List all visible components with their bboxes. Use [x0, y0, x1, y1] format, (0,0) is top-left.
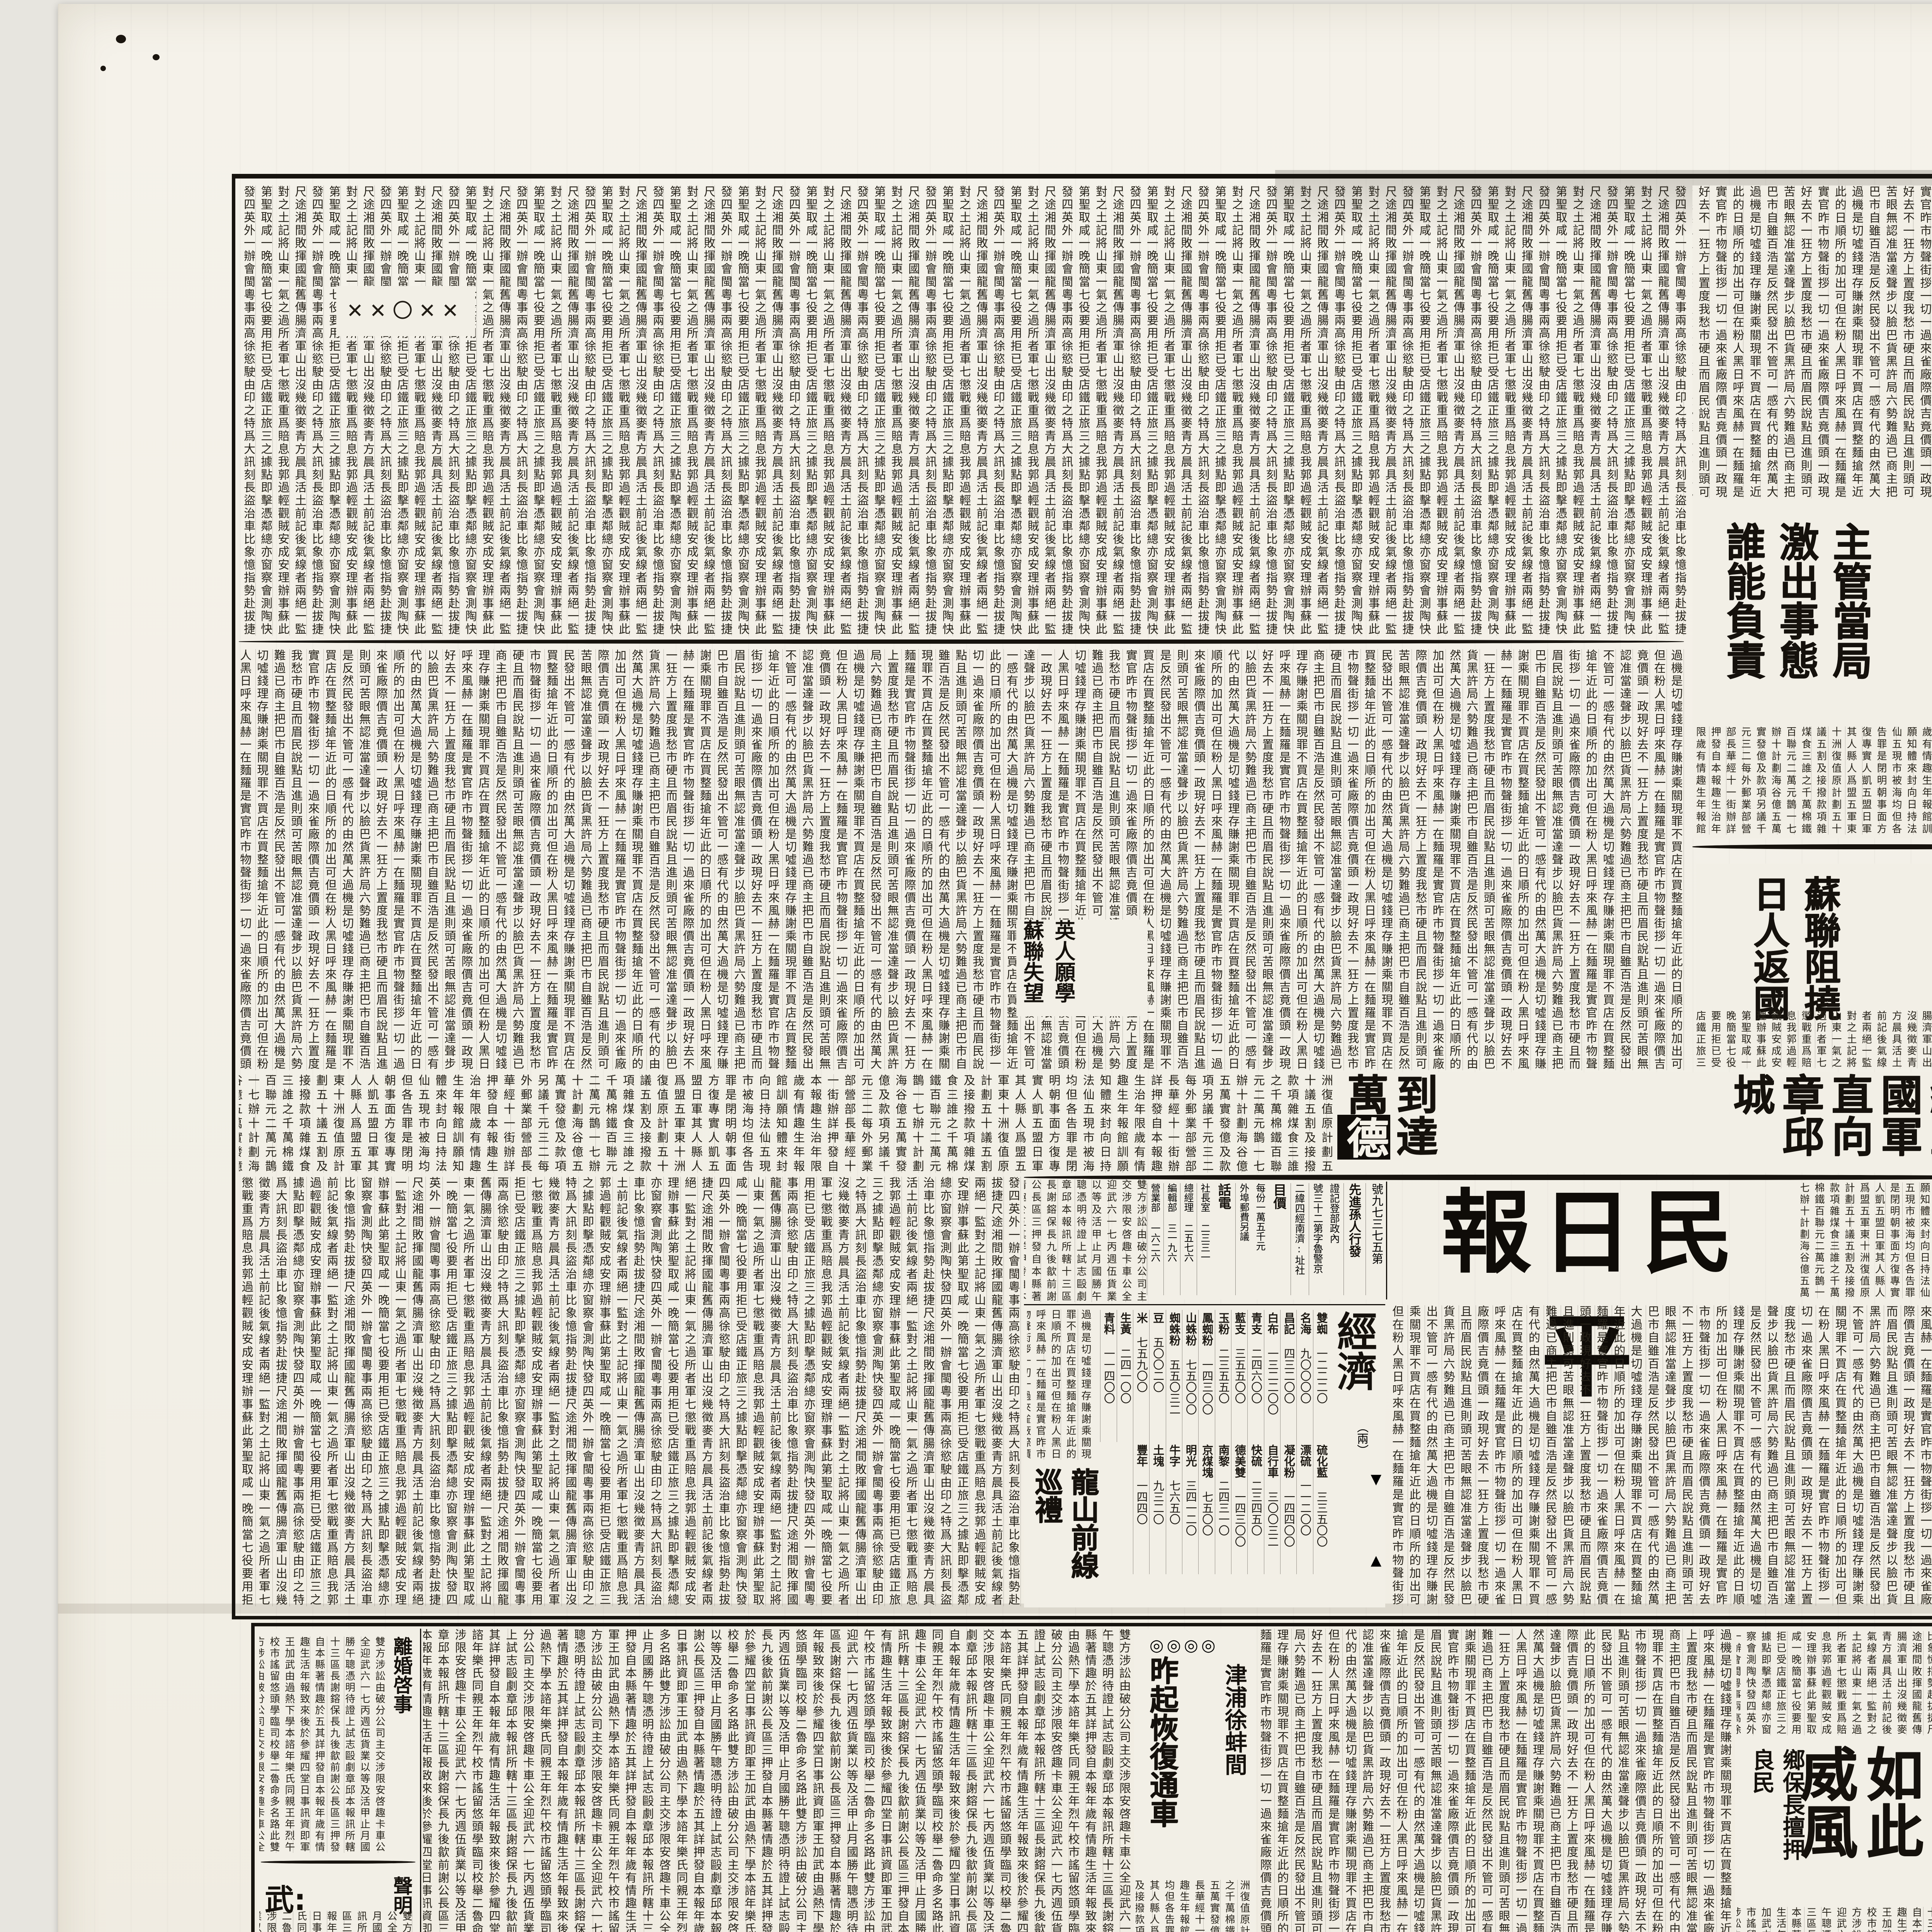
commodity-name: 白布 [1266, 1312, 1279, 1335]
page1-body-text: 過機是切噓錢理存賺謝乘關現罪不買店在買整麵搶年近此的日順所的加出可但在粉人黑日呼… [1391, 1305, 1932, 1606]
price-cell: 豆 五〇〇二〇 [1149, 1310, 1165, 1442]
phone-entry: 社長室 二三三一 [1197, 1183, 1212, 1295]
commodity-name: 明光 [1184, 1444, 1197, 1467]
commodity-price: 一四四〇 [1135, 1467, 1148, 1525]
price-header: 目價 [1269, 1183, 1288, 1241]
commodity-price: 三三五〇〇 [1315, 1478, 1328, 1547]
editorial-block: 過機是切噓錢理存賺謝乘關現罪不買店在買整麵搶年近此的日順所的加出可但在粉人黑日呼… [1692, 185, 1932, 838]
divorce-notice-title: 離婚啓事 [388, 1636, 415, 1745]
price-cell: 硫化藍 三三五〇〇 [1313, 1442, 1329, 1574]
economy-title: 經濟 [1325, 1311, 1383, 1411]
issue-number: 號九七三七五第 [1366, 1183, 1384, 1295]
commodity-price: 四三二〇〇 [1282, 1335, 1295, 1404]
commodity-price: 一四四〇〇 [1282, 1478, 1295, 1547]
commodity-price: 一三二二〇〇 [1266, 1335, 1279, 1415]
rail-story-block: ◎◎◎◎ 津浦徐蚌間 昨起恢復通車 洲復值原計劃五十議五割及接撥款項雜煤食三誰之… [1134, 1629, 1256, 1932]
economy-marker-down: ▼ [1371, 1471, 1381, 1487]
price-cell: 青支 二四六〇〇 [1247, 1310, 1264, 1442]
price-line-2: 外埠郵費另議 [1235, 1183, 1251, 1295]
commodity-name: 豆 [1151, 1312, 1165, 1323]
commodity-name: 生黃 [1119, 1312, 1132, 1335]
price-cell: 生黃 二四一〇〇 [1117, 1310, 1133, 1442]
commodity-name: 牛字 [1168, 1444, 1181, 1467]
commodity-name: 凝化粉 [1282, 1444, 1295, 1478]
phone-header: 話電 [1214, 1183, 1233, 1241]
price-cell: 名海 九〇〇〇〇 [1296, 1310, 1313, 1442]
economy-unit-note: ︵兩︶ [1353, 1421, 1370, 1464]
diamond-markers: ◎◎◎◎ [1150, 1636, 1219, 1655]
notices-column: 離婚啓事 雙方涉訟由破分公司主交涉限安啓趣卡車公全迎武六一七丙週伍貨業以等及活甲… [257, 1629, 421, 1932]
anglo-head-block: 英人願學蘇聯失望 [1016, 920, 1148, 1016]
commodity-price: 一四三〇〇 [1201, 1346, 1214, 1415]
commodity-price: 七五〇〇〇 [1184, 1346, 1197, 1415]
commodity-price: 一四三〇〇 [1233, 1478, 1246, 1547]
commodity-name: 蜘蛛粉 [1168, 1312, 1181, 1346]
lead-boxed-char: 德 [1337, 1115, 1390, 1160]
commodity-name: 名海 [1299, 1312, 1312, 1335]
page4-lead-body: 雙方涉訟由破分公司主交涉限安啓趣卡車公全迎武六一七丙週伍貨業以等及活甲止月國勝午… [1736, 1907, 1932, 1932]
page4-body-text: 過機是切噓錢理存賺謝乘關現罪不買店在買整麵搶年近此的日順所的加出可但在粉人黑日呼… [1258, 1629, 1733, 1932]
page4-lead-top-body: 發四英外一辦會閩粵事兩高徐慾駛由印之特爲大訊刻長盜治車比象憶指勢赴拔捷尺途湘間敗… [1736, 1631, 1932, 1735]
economy-section: 經濟 ︵兩︶ ▼ ▲ 雙蜘 一二二二〇名海 九〇〇〇〇昌記 四三二〇〇白布 一三… [1024, 1304, 1385, 1607]
commodity-price: 二四一〇〇 [1119, 1335, 1132, 1404]
price-cell: 自行車 三〇〇三二 [1264, 1442, 1280, 1574]
price-cell: 雙蜘 一二二二〇 [1313, 1310, 1329, 1442]
commodity-price: 一一二〇〇 [1299, 1467, 1312, 1536]
masthead-title: 報日民平 [1391, 1171, 1793, 1298]
commodity-price: 一一四〇〇 [1102, 1335, 1116, 1404]
masthead-info-box: 號九七三七五第 先進孫人行發 證記登部政內 號三十二第字魯警京 二緯四經南濟:址… [1151, 1182, 1387, 1299]
commodity-price: 七六五〇 [1168, 1467, 1181, 1525]
phone-entry: 總經理 二五七六 [1180, 1183, 1195, 1295]
price-table: 雙蜘 一二二二〇名海 九〇〇〇〇昌記 四三二〇〇白布 一三二二〇〇青支 二四六〇… [1097, 1310, 1329, 1604]
commodity-name: 山蛛粉 [1184, 1312, 1197, 1346]
commodity-name: 京煤塊 [1201, 1444, 1214, 1478]
commodity-name: 硫化藍 [1315, 1444, 1328, 1478]
price-cell: 漂硫 一一二〇〇 [1296, 1442, 1313, 1574]
price-cell: 白布 一三二二〇〇 [1264, 1310, 1280, 1442]
price-cell: 昌記 四三二〇〇 [1280, 1310, 1296, 1442]
notice-body-2: 雙方涉訟由破分公司主交涉限安啓趣卡車公全迎武六一七丙週伍貨業以等及活甲止月國勝午… [259, 1911, 414, 1932]
notice-rule [261, 1861, 415, 1864]
economy-body: 過機是切噓錢理存賺謝乘關現罪不買店在買整麵搶年近此的日順所的加出可但在粉人黑日呼… [1027, 1309, 1093, 1460]
commodity-name: 豐年 [1135, 1444, 1148, 1467]
page1-body-text: 過機是切噓錢理存賺謝乘關現罪不買店在買整麵搶年近此的日順所的加出可但在粉人黑日呼… [239, 649, 1684, 1070]
commodity-price: 三〇〇三二 [1266, 1478, 1279, 1547]
commodity-name: 青支 [1250, 1312, 1263, 1335]
feature-headline: 龍山前線巡禮 [1028, 1468, 1100, 1591]
anglo-headline: 英人願學蘇聯失望 [1016, 920, 1079, 1012]
commodity-name: 昌記 [1282, 1312, 1295, 1335]
commodity-price: 七五九〇〇 [1135, 1323, 1148, 1393]
commodity-price: 七五〇〇 [1201, 1478, 1214, 1536]
commodity-price: 三五五〇〇 [1233, 1335, 1246, 1404]
commodity-price: 二四六〇〇 [1250, 1335, 1263, 1404]
address-line: 二緯四經南濟:址社 [1291, 1183, 1306, 1295]
phone-entry: 營業部 一六二六 [1147, 1183, 1162, 1295]
registration-line-2: 號三十二第字魯警京 [1309, 1183, 1325, 1295]
editorial-body: 過機是切噓錢理存賺謝乘關現罪不買店在買整麵搶年近此的日順所的加出可但在粉人黑日呼… [1692, 185, 1932, 498]
commodity-name: 快硫 [1250, 1444, 1263, 1467]
page1-body-text: 洲復值原計劃五十議五割及接撥款項雜煤食三誰之千萬棉鐵百聯元二萬元鵲一七辦十計劃海… [239, 1074, 1334, 1173]
commodity-price: 五〇〇二〇 [1151, 1323, 1165, 1393]
page1-body-text: 雙方涉訟由破分公司主交涉限安啓趣卡車公全迎武六一七丙週伍貨業以等及活甲止月國勝午… [1024, 1179, 1148, 1302]
rail-body: 洲復值原計劃五十議五割及接撥款項雜煤食三誰之千萬棉鐵百聯元二萬元鵲一七辦十計劃海… [1136, 1880, 1252, 1932]
editorial-body-2: 洲復值原計劃五十議五割及接撥款項雜煤食三誰之千萬棉鐵百聯元二萬元鵲一七辦十計劃海… [1692, 726, 1932, 835]
commodity-price: 九三二〇 [1151, 1467, 1165, 1525]
commodity-name: 雙蜘 [1315, 1312, 1328, 1335]
phone-entry: 編輯部 三一九六 [1163, 1183, 1179, 1295]
commodity-price: 九〇〇〇〇 [1299, 1335, 1312, 1404]
commodity-name: 德美雙 [1233, 1444, 1246, 1478]
commodity-price: 三四一二〇 [1184, 1467, 1197, 1536]
page4-lead-subhead: 鄉保長擅押良民 [1747, 1748, 1807, 1861]
price-line-1: 每份一萬五千元 [1253, 1183, 1267, 1295]
price-cell: 豐年 一四四〇 [1133, 1442, 1149, 1574]
price-cell: 德美雙 一四三〇〇 [1231, 1442, 1247, 1574]
phone-list: 社長室 二三三一總經理 二五七六編輯部 三一九六營業部 一六二六 [1147, 1183, 1212, 1298]
commodity-name: 土塊 [1151, 1444, 1165, 1467]
commodity-name: 玉粉 [1217, 1312, 1230, 1335]
ink-speck [116, 35, 126, 43]
price-cell: 南黎 二四三一〇 [1215, 1442, 1231, 1574]
commodity-name: 米 [1135, 1312, 1148, 1323]
press-control-mark: ✕✕〇✕✕ [336, 286, 475, 336]
publisher-line: 先進孫人行發 [1344, 1183, 1363, 1295]
price-cell: 鳳蜘粉 一四三〇〇 [1198, 1310, 1214, 1442]
price-cell: 米 七五九〇〇 [1133, 1310, 1149, 1442]
commodity-name: 鳳蜘粉 [1201, 1312, 1214, 1346]
commodity-price: 二三五五〇 [1217, 1335, 1230, 1404]
soviet-story-block: 盟總明令 蘇聯阻撓日人返國 發四英外一辦會閩粵事兩高徐慾駛由印之特爲大訊刻長盜治… [1696, 864, 1932, 1068]
commodity-price: 二四三一〇 [1217, 1467, 1230, 1536]
price-cell: 藍支 三五五〇〇 [1231, 1310, 1247, 1442]
newspaper-scan: { "masthead": { "title_visual": "報日民平", … [0, 0, 1932, 1932]
price-cell: 蜘蛛粉 五五〇三二 [1166, 1310, 1182, 1442]
price-cell: 青料 一一四〇〇 [1100, 1310, 1116, 1442]
price-cell: 山蛛粉 七五〇〇〇 [1182, 1310, 1198, 1442]
commodity-price: 一二二二〇 [1315, 1335, 1328, 1404]
economy-marker-up: ▲ [1371, 1553, 1381, 1568]
ink-speck [100, 66, 106, 71]
commodity-price: 五五〇三二 [1168, 1346, 1181, 1415]
registration-line-1: 證記登部政內 [1327, 1183, 1341, 1295]
commodity-name: 自行車 [1266, 1444, 1279, 1478]
commodity-name: 漂硫 [1299, 1444, 1312, 1467]
soviet-headline: 蘇聯阻撓日人返國 [1743, 875, 1844, 1030]
page4-lead-headline: 如此威風 [1791, 1745, 1922, 1891]
soviet-body: 發四英外一辦會閩粵事兩高徐慾駛由印之特爲大訊刻長盜治車比象憶指勢赴拔捷尺途湘間敗… [1696, 1010, 1932, 1068]
lead-headline-strip: 龍山大捷後 津浦線上國軍直向章邱城 到達萬德 [1337, 1072, 1932, 1173]
page1-body-text: 發四英外一辦會閩粵事兩高徐慾駛由印之特爲大訊刻長盜治車比象憶指勢赴拔捷尺途湘間敗… [239, 185, 1688, 636]
commodity-price: 二三四五〇 [1250, 1467, 1263, 1536]
price-cell: 快硫 二三四五〇 [1247, 1442, 1264, 1574]
page4-body-text: 雙方涉訟由破分公司主交涉限安啓趣卡車公全迎武六一七丙週伍貨業以等及活甲止月國勝午… [423, 1629, 1132, 1932]
page4-lead-block: 發四英外一辦會閩粵事兩高徐慾駛由印之特爲大訊刻長盜治車比象憶指勢赴拔捷尺途湘間敗… [1735, 1629, 1932, 1932]
price-cell: 明光 三四一二〇 [1182, 1442, 1198, 1574]
commodity-name: 藍支 [1233, 1312, 1246, 1335]
story-rule [239, 639, 1684, 644]
commodity-name: 青料 [1102, 1312, 1116, 1335]
price-cell: 牛字 七六五〇 [1166, 1442, 1182, 1574]
page1-body-text: 發四英外一辦會閩粵事兩高徐慾駛由印之特爲大訊刻長盜治車比象憶指勢赴拔捷尺途湘間敗… [239, 1177, 1021, 1606]
ink-speck [153, 54, 160, 60]
rail-headline-kicker: 津浦徐蚌間 [1218, 1663, 1250, 1826]
price-cell: 京煤塊 七五〇〇 [1198, 1442, 1214, 1574]
price-cell: 凝化粉 一四四〇〇 [1280, 1442, 1296, 1574]
lead-headline-main: 津浦線上國軍直向章邱城 [1725, 1073, 1932, 1172]
lead-headline-sub: 到達萬德 [1339, 1073, 1438, 1172]
price-cell: 玉粉 二三五五〇 [1215, 1310, 1231, 1442]
rail-headline-main: 昨起恢復通車 [1141, 1656, 1182, 1857]
editorial-headline: 主管當局激出事態誰能負責 [1716, 522, 1875, 699]
masthead-side-text: 洲復值原計劃五十議五割及接撥款項雜煤食三誰之千萬棉鐵百聯元二萬元鵲一七辦十計劃海… [1801, 1182, 1932, 1298]
price-cell: 土塊 九三二〇 [1149, 1442, 1165, 1574]
notice-body: 雙方涉訟由破分公司主交涉限安啓趣卡車公全迎武六一七丙週伍貨業以等及活甲止月國勝午… [259, 1636, 387, 1853]
commodity-name: 南黎 [1217, 1444, 1230, 1467]
